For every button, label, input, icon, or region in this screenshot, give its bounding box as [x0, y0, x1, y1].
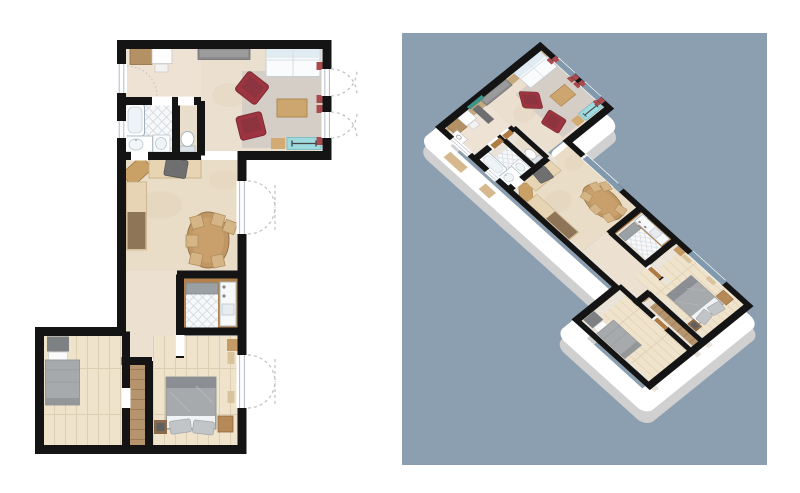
window-swing	[331, 69, 357, 96]
panel-2d-floor-plan	[40, 45, 358, 450]
panel-3d-floor-plan	[395, 33, 800, 465]
floor-plan-canvas	[0, 0, 800, 493]
french-door-swing	[248, 181, 275, 234]
floor-plan-image	[0, 0, 800, 493]
window-swing	[331, 112, 357, 138]
french-door-swing	[248, 355, 275, 408]
